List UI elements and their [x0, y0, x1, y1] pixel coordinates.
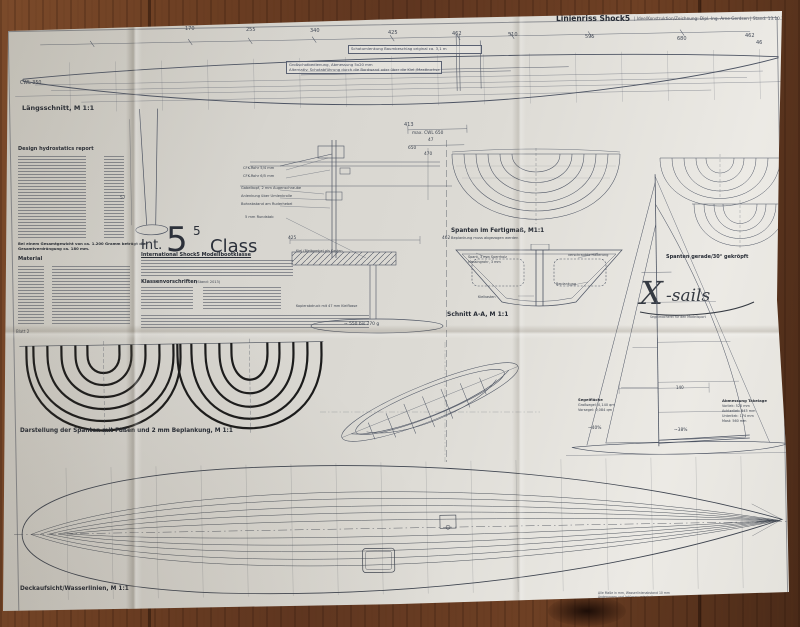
- body-plan-sublabel: Beplankung muss abgezogen werden: [451, 236, 518, 240]
- dim-425: 425: [288, 236, 296, 241]
- frames-view-label: Darstellung der Spanten mit Füßen und 2 …: [20, 428, 233, 435]
- dim-top-right: 462: [745, 33, 755, 39]
- dim-413: 413: [404, 122, 414, 128]
- dim-top-right: 46: [756, 40, 762, 46]
- rig-dims-heading: Abmessung Takelage: [722, 399, 767, 404]
- rig-dim-row: Mast: 560 mm: [722, 419, 746, 423]
- wood-knot: [548, 596, 626, 626]
- dim-top: 425: [388, 30, 398, 36]
- section-aa-note: Kielkasten: [478, 295, 496, 299]
- keel-note: Kiel (Bleibombe) als Kasten: [296, 249, 343, 253]
- hydrostatics-values-column: [104, 156, 124, 238]
- sail-pct-right: ~38%: [674, 428, 687, 433]
- photo-of-blueprint-on-table: Linienriss Shock5 | Idee/Konstruktion/Ze…: [0, 0, 800, 627]
- hydrostatics-table-rows: [18, 156, 124, 238]
- rig-dim-row: Unterliek: 174 mm: [722, 414, 754, 418]
- hydrostatics-labels-column: [18, 156, 86, 238]
- mast-note: Bohrabstand am Ruderhebel: [241, 202, 292, 206]
- deck-plan-drawing: [11, 443, 793, 605]
- dim-top: 595: [585, 34, 595, 40]
- sail-plan-drawing: [556, 160, 797, 461]
- ballast-weight-label: ~ 550 bis 770 g: [344, 322, 379, 327]
- class-rules-heading: Klassenvorschriften: [141, 279, 197, 285]
- sail-area-heading: Segelfläche: [578, 398, 603, 403]
- dim-top: 340: [310, 28, 320, 34]
- keel-profile-note: Kopierabdruck mit 47 mm Kielflosse: [296, 304, 357, 308]
- dim-top: 170: [185, 26, 195, 32]
- sheet-meta: | Idee/Konstruktion/Zeichnung: Dipl.-Ing…: [634, 16, 792, 21]
- deck-plan-label: Deckaufsicht/Wasserlinien, M 1:1: [20, 586, 129, 593]
- section-aa-label: Schnitt A-A, M 1:1: [447, 311, 508, 318]
- class-rules-labels: [141, 287, 193, 309]
- mast-note: CFK-Rohr 6/5 mm: [243, 174, 274, 178]
- sail-area-jib: Vorsegel: 0,084 qm: [578, 408, 612, 412]
- material-values-column: [52, 266, 130, 326]
- body-plan-label: Spanten im Fertigmaß, M1:1: [451, 228, 544, 235]
- material-labels-column: [18, 266, 44, 326]
- boom-note: Schotumlenkung Baumbeschlag original ca.…: [348, 45, 482, 54]
- sheet-note: Großschotbedienung, Abmessung 5x20 mm Al…: [286, 61, 442, 74]
- dim-top: 255: [246, 27, 256, 33]
- material-heading: Material: [18, 256, 42, 262]
- sheet-note-line2: Alternativ: Schotabführung durch die Bor…: [289, 68, 439, 73]
- longitudinal-label: Längsschnitt, M 1:1: [22, 105, 94, 113]
- sail-pct-left: ~40%: [588, 426, 601, 431]
- dim-top: 680: [677, 36, 687, 42]
- weight-note-line2: Gesamtverdrängung ca. 180 mm.: [18, 247, 89, 252]
- sail-dim-140: 140: [676, 386, 684, 391]
- hydrostatics-heading: Design hydrostatics report: [18, 146, 94, 152]
- sheet-number: Blatt 2: [16, 330, 29, 335]
- mast-note: CFK-Rohr 5/4 mm: [243, 166, 274, 170]
- construction-centerline: [446, 140, 447, 462]
- class-subtitle: International Shock5 Modellbootklasse: [141, 252, 251, 258]
- material-table-rows: [18, 266, 130, 326]
- rig-dim-row: Vorliek: 520 mm: [722, 404, 750, 408]
- cwl-label: CWL 350: [20, 81, 41, 87]
- rig-dim-row: Achterliek: 545 mm: [722, 409, 755, 413]
- section-aa-note: Messingrohr, 3 mm: [468, 260, 501, 264]
- section-aa-note: Spant, 3 mm Sperrholz: [468, 255, 507, 259]
- dim-top: 510: [508, 32, 518, 38]
- dim-top: 462: [452, 31, 462, 37]
- mast-note: 5 mm Rundstab: [245, 215, 274, 219]
- sail-area-main: Großsegel: 0,140 qm: [578, 403, 615, 407]
- hull-framework-perspective-drawing: [320, 342, 540, 462]
- mast-note: Gabelkopf, 2 mm Augenschraube: [241, 186, 301, 190]
- dim-470: 470: [424, 152, 432, 157]
- dim-max-cwl: max. CWL 650: [412, 131, 443, 136]
- mast-note: Anlenkung über Umlenkrolle: [241, 194, 292, 198]
- frames-with-feet-drawing: [11, 336, 328, 439]
- blueprint-sheet: Linienriss Shock5 | Idee/Konstruktion/Ze…: [0, 0, 800, 627]
- class-number-sup: 5: [193, 224, 201, 238]
- class-rules-stand: (Stand: 2013): [196, 280, 220, 284]
